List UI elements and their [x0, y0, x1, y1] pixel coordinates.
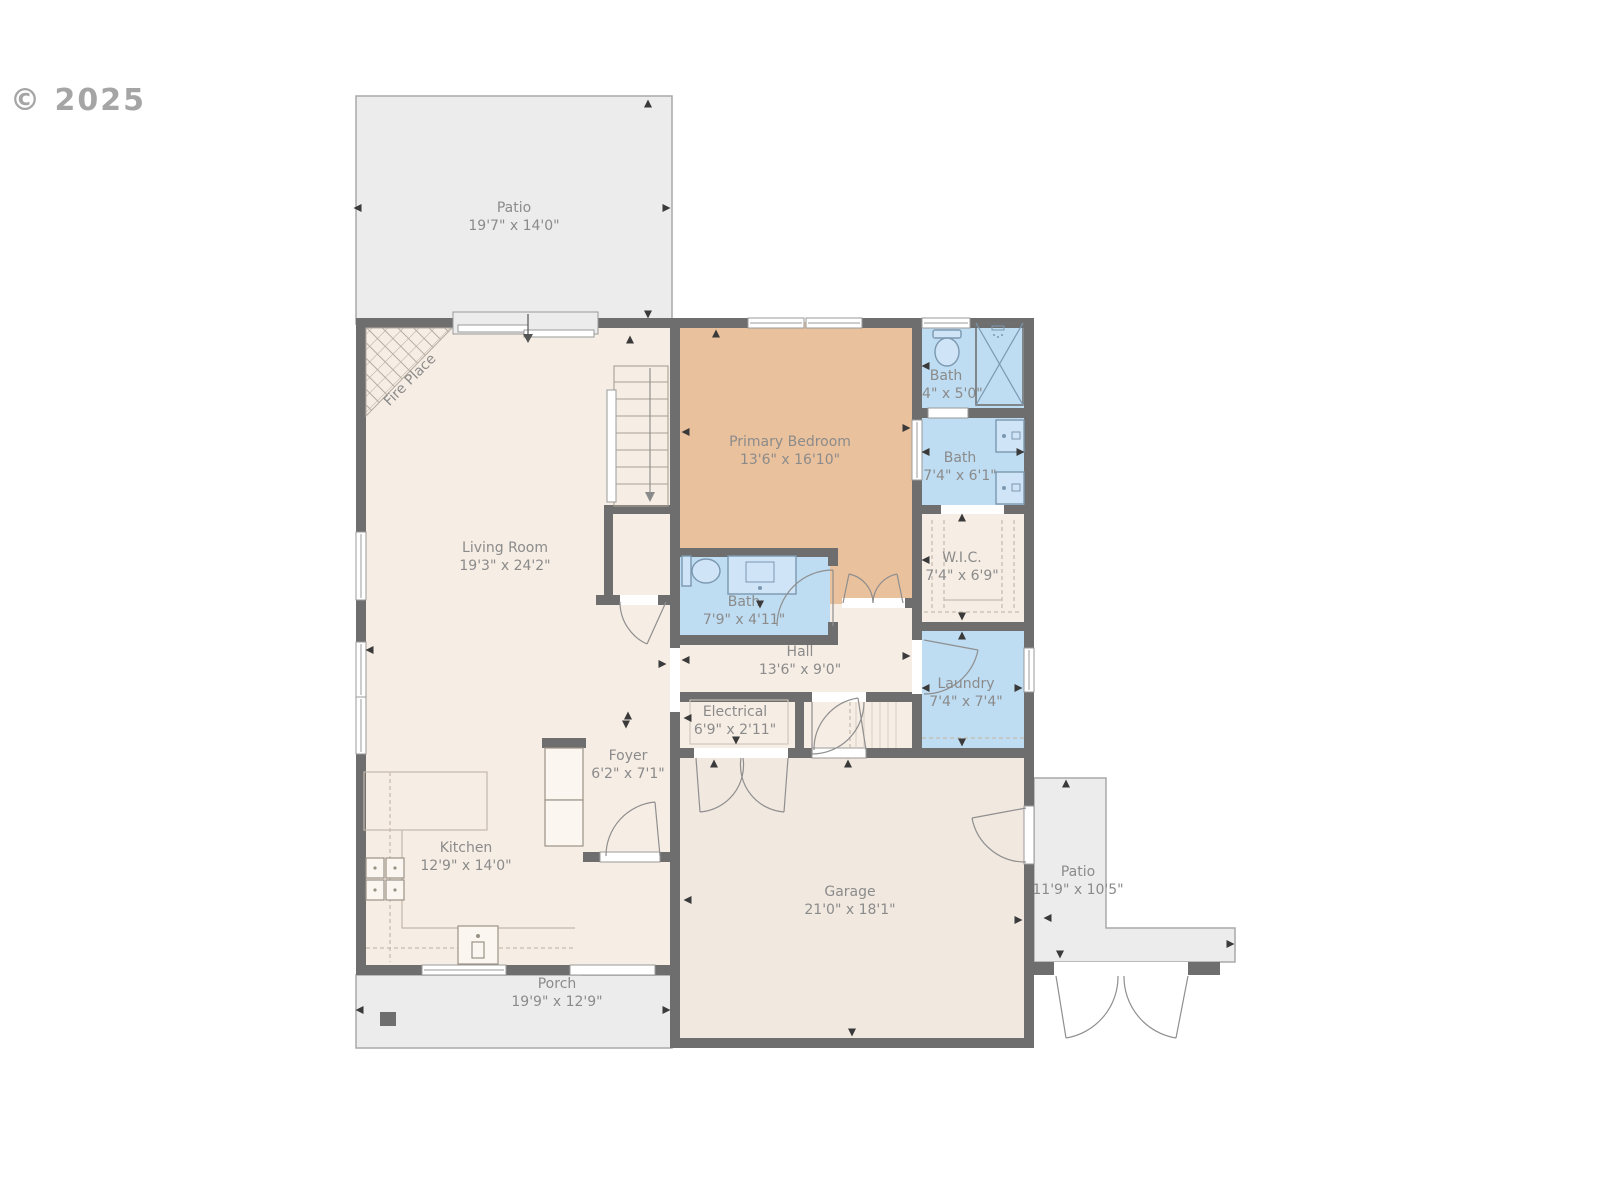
- patio-top-dims: 19'7" x 14'0": [468, 218, 559, 234]
- bath-hall-name: Bath: [728, 594, 761, 610]
- toilet-icon: [682, 556, 691, 586]
- patio-right-dims: 11'9" x 10'5": [1032, 882, 1123, 898]
- stair-handrail: [607, 390, 616, 502]
- garage-name: Garage: [824, 884, 875, 900]
- toilet-bowl-icon: [935, 338, 959, 366]
- bath-ensuite-dims: 7'4" x 6'1": [923, 468, 996, 484]
- primary-bedroom-dims: 13'6" x 16'10": [740, 452, 840, 468]
- living-room-dims: 19'3" x 24'2": [459, 558, 550, 574]
- pantry-cabinets: [545, 748, 583, 846]
- electrical-name: Electrical: [703, 704, 767, 720]
- living-room-name: Living Room: [462, 540, 548, 556]
- bath-ensuite-name: Bath: [944, 450, 977, 466]
- bath-hall-dims: 7'9" x 4'11": [703, 612, 785, 628]
- kitchen-sink-icon: [458, 926, 498, 964]
- foyer-dims: 6'2" x 7'1": [591, 766, 664, 782]
- laundry-dims: 7'4" x 7'4": [929, 694, 1002, 710]
- clip-patch: [898, 384, 912, 401]
- wic-dims: 7'4" x 6'9": [925, 568, 998, 584]
- floor-plan-page: 7'4" x 5'0": [0, 0, 1600, 1200]
- kitchen-name: Kitchen: [440, 840, 493, 856]
- laundry-name: Laundry: [937, 676, 994, 692]
- wic-name: W.I.C.: [942, 550, 982, 566]
- electrical-dims: 6'9" x 2'11": [694, 722, 776, 738]
- hall-name: Hall: [787, 644, 814, 660]
- garage-dims: 21'0" x 18'1": [804, 902, 895, 918]
- porch-name: Porch: [538, 976, 577, 992]
- toilet-bowl-icon: [692, 559, 720, 583]
- kitchen-dims: 12'9" x 14'0": [420, 858, 511, 874]
- patio-right-name: Patio: [1061, 864, 1095, 880]
- porch-post: [380, 1012, 396, 1026]
- toilet-icon: [933, 330, 961, 338]
- foyer-name: Foyer: [609, 748, 648, 764]
- bath-small-name: Bath: [930, 368, 963, 384]
- primary-bedroom-name: Primary Bedroom: [729, 434, 851, 450]
- bath-small-fixtures: [933, 330, 961, 366]
- patio-top-name: Patio: [497, 200, 531, 216]
- copyright-watermark: © 2025: [10, 83, 146, 118]
- porch-dims: 19'9" x 12'9": [511, 994, 602, 1010]
- floor-plan-drawing: 7'4" x 5'0": [0, 0, 1600, 1200]
- hall-dims: 13'6" x 9'0": [759, 662, 841, 678]
